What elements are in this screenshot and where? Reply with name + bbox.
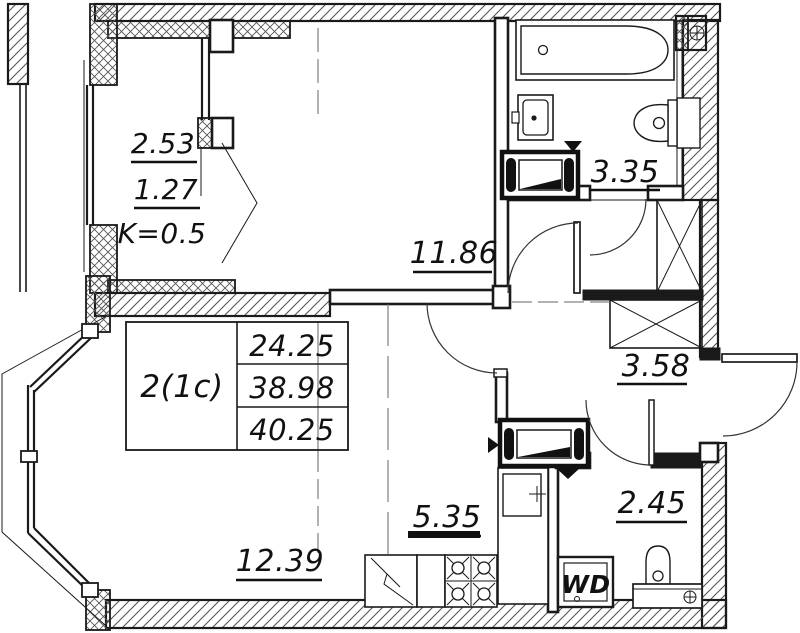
wall-kitchen-partition: [496, 373, 507, 422]
wall-kitchen-wc: [548, 466, 558, 612]
balcony-bottom-band: [108, 280, 235, 293]
balcony-door-leaf: [222, 143, 257, 263]
wc-sink-icon: [633, 584, 702, 608]
bathroom-area-label: 3.35: [591, 155, 660, 190]
toilet-icon: [634, 98, 700, 148]
floor-plan-svg: 2(1c) 24.25 38.98 40.25 2.53 1.27 K=0.5 …: [0, 0, 800, 633]
kitchen-area-label: 5.35: [413, 500, 482, 535]
unit-type-label: 2(1c): [140, 369, 223, 405]
entrance-door: [722, 354, 797, 436]
door-swing-marker: [488, 437, 499, 453]
washing-machine-icon: [502, 141, 582, 198]
partition-pier: [198, 118, 212, 148]
bay-mullion: [82, 583, 98, 597]
apartment-area-value: 38.98: [249, 371, 335, 405]
bedroom-door: [508, 222, 580, 293]
wall-top: [95, 4, 720, 21]
bathroom-sink-icon: [512, 95, 553, 140]
wall-left-stub: [8, 4, 28, 84]
balcony-pier-top: [90, 4, 117, 85]
bathroom-door: [590, 199, 646, 255]
balcony-reduced-area-label: 1.27: [134, 173, 198, 206]
fridge-icon: [365, 555, 417, 607]
hall-wardrobes: [610, 200, 702, 348]
entrance-jamb-top: [700, 348, 720, 360]
balcony-coefficient-label: K=0.5: [118, 217, 207, 250]
parapet-top: [108, 21, 290, 38]
balcony-area-label: 2.53: [131, 127, 195, 160]
stove-icon: [445, 555, 497, 607]
living-area-value: 24.25: [249, 329, 335, 363]
wc-toilet-icon: [646, 546, 670, 588]
door-swing-marker: [556, 468, 580, 479]
kitchen-sink-icon: [498, 468, 548, 604]
wc-door: [586, 400, 654, 465]
bay-window: [2, 317, 105, 625]
wall-living-top: [95, 293, 330, 316]
room-labels: 2.53 1.27 K=0.5 11.86 3.35 3.58 12.39 5.…: [118, 127, 691, 599]
bathtub-icon: [516, 20, 674, 80]
wc-area-label: 2.45: [618, 486, 687, 521]
living-room-area-label: 12.39: [236, 544, 324, 579]
bay-mullion: [21, 451, 37, 462]
living-room-door: [427, 303, 497, 373]
wardrobe-icon: [657, 200, 702, 292]
floor-plan-page: 2(1c) 24.25 38.98 40.25 2.53 1.27 K=0.5 …: [0, 0, 800, 633]
wall-jamb: [493, 286, 510, 308]
bay-mullion: [82, 324, 98, 338]
entrance-jamb-bottom: [700, 443, 718, 462]
washer-dryer-label: WD: [561, 570, 610, 599]
exterior-walls: [8, 4, 726, 628]
partition-top-block: [210, 20, 233, 52]
wall-bedroom-bottom: [330, 290, 507, 304]
bedroom-area-label: 11.86: [410, 236, 498, 271]
hallway-area-label: 3.58: [622, 349, 691, 384]
counter-cell: [417, 555, 445, 607]
unit-info-table: 2(1c) 24.25 38.98 40.25: [126, 322, 348, 450]
total-area-value: 40.25: [249, 413, 335, 447]
wall-wc-top-right: [651, 453, 702, 468]
wardrobe-icon: [610, 300, 702, 348]
